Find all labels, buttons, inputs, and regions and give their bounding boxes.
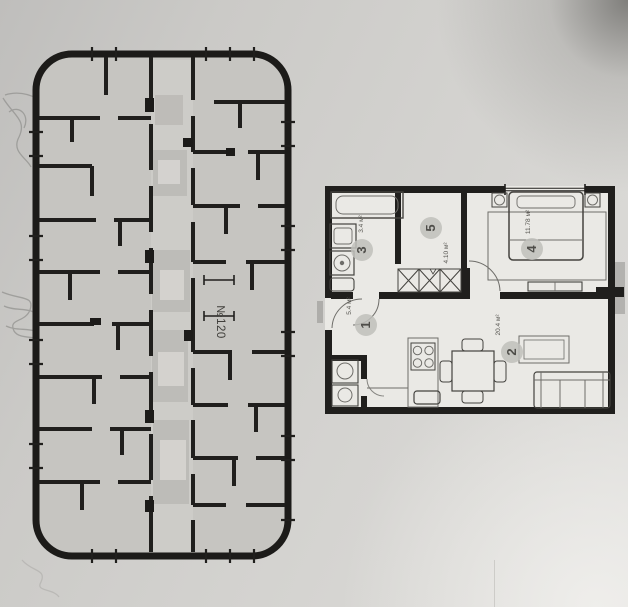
room-2-number: 2 xyxy=(504,348,519,355)
room-3-number: 3 xyxy=(354,246,369,253)
room-1-area: 5.4 м² xyxy=(346,296,353,314)
room-5-number: 5 xyxy=(423,224,438,231)
floor-plan-drawing: №120 xyxy=(0,0,628,607)
room-5-area: 4.10 м² xyxy=(443,242,450,264)
room-1-number: 1 xyxy=(358,321,373,328)
room-4-number: 4 xyxy=(524,245,539,253)
building-floor-plate-plan: №120 xyxy=(29,47,295,563)
room-3-area: 3.4 м² xyxy=(358,214,365,232)
unit-number-label: №120 xyxy=(214,305,226,339)
central-corridor xyxy=(151,60,193,552)
photo-of-floor-plans: №120 xyxy=(0,0,628,607)
room-4-area: 11.78 м² xyxy=(525,209,532,234)
room-2-area: 20.4 м² xyxy=(495,314,502,336)
entry-tag xyxy=(317,301,323,323)
apartment-detail-plan: 1 5.4 м² 2 20.4 м² 3 3.4 м² 4 11.78 м² xyxy=(317,184,625,414)
